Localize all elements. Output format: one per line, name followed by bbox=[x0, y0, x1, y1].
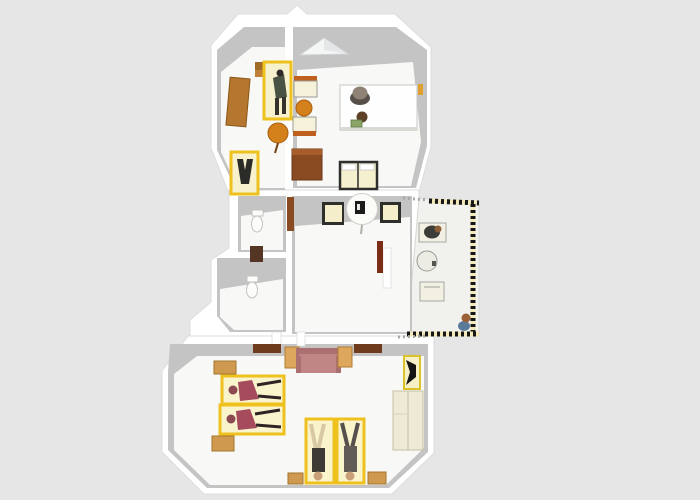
desk-office-edge bbox=[340, 127, 417, 131]
shelf-dark-right bbox=[354, 344, 382, 353]
stool-office bbox=[296, 100, 312, 116]
vanity-dark bbox=[250, 246, 263, 262]
door-living-mid bbox=[377, 241, 383, 273]
stool-left bbox=[288, 473, 303, 484]
cabinet-right bbox=[338, 347, 352, 367]
railing-top-dashes bbox=[429, 201, 479, 203]
stool-right bbox=[368, 472, 386, 484]
table-balcony-mark bbox=[432, 261, 436, 266]
toilet-upper-tank bbox=[252, 210, 263, 216]
child-balcony-body bbox=[458, 321, 470, 331]
shelf-dark-left bbox=[253, 344, 281, 353]
woman-b-leg2 bbox=[256, 425, 281, 427]
person-standing-head bbox=[277, 70, 284, 77]
floor-bedroom2 bbox=[174, 356, 424, 485]
woman-a-leg2 bbox=[258, 396, 281, 398]
toilet-lower-tank bbox=[247, 276, 258, 282]
chair-office2-back bbox=[293, 131, 316, 136]
person-standing-leg2 bbox=[282, 97, 286, 114]
wall-stub-doorway-right bbox=[297, 332, 305, 346]
toilet-lower-bowl bbox=[247, 282, 258, 298]
chair-office1-seat bbox=[294, 81, 317, 97]
chair-office2-seat bbox=[293, 117, 316, 132]
toilet-upper-bowl bbox=[252, 216, 263, 232]
wardrobe-office-top bbox=[292, 149, 322, 155]
chair-dining-right-cushion bbox=[383, 205, 398, 220]
table-dining-leg bbox=[361, 225, 362, 234]
table-dining-object-mark bbox=[357, 204, 360, 210]
render-viewport bbox=[0, 0, 700, 500]
person-balcony-head bbox=[435, 226, 442, 233]
door-living-left bbox=[287, 197, 294, 231]
chair-balcony bbox=[420, 282, 444, 301]
chair-office1-back bbox=[294, 76, 317, 81]
nightstand-a bbox=[214, 361, 236, 374]
sofa-body bbox=[299, 354, 337, 373]
person-standing-leg1 bbox=[275, 98, 279, 115]
wall-stub-doorway-left bbox=[272, 332, 281, 346]
sofa-arm-left bbox=[296, 356, 301, 373]
man-d-body bbox=[344, 446, 357, 472]
doublebed-pillow2 bbox=[360, 164, 374, 170]
floorplan-3d-view[interactable] bbox=[0, 0, 700, 500]
chair-dining-left-cushion bbox=[325, 205, 342, 222]
child-balcony-head bbox=[462, 314, 471, 323]
man-c-body bbox=[312, 448, 325, 472]
nightstand-b bbox=[212, 436, 234, 451]
wall-decor-orange bbox=[418, 84, 423, 95]
floor-living bbox=[295, 217, 410, 332]
dresser-bedroom1 bbox=[226, 77, 250, 127]
woman-a-head bbox=[229, 386, 238, 395]
person-desk-hair bbox=[353, 87, 368, 100]
woman-b-head bbox=[227, 415, 236, 424]
man-d-head bbox=[346, 472, 355, 481]
doublebed-pillow1 bbox=[342, 164, 356, 170]
man-c-head bbox=[314, 472, 323, 481]
wall-stub-living bbox=[383, 248, 391, 288]
book-green bbox=[351, 120, 362, 127]
table-round-bedroom1 bbox=[268, 123, 288, 143]
